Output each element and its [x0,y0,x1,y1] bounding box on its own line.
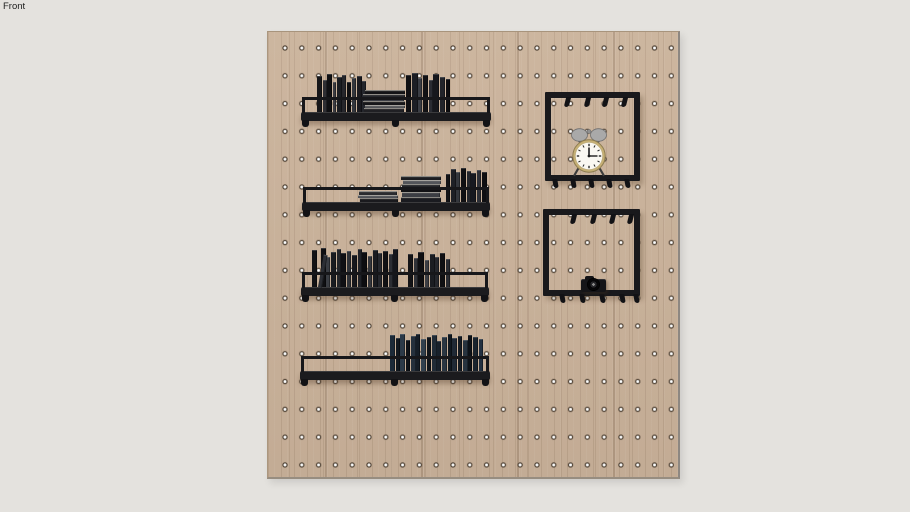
shelf-mount-hook [301,379,308,386]
book [342,75,346,112]
shelf-mount-hook [481,295,488,302]
camera-lens-icon [588,279,599,290]
frame-hook [627,214,634,224]
book [477,170,481,202]
book [461,168,466,202]
book [327,74,332,112]
clock-bell-right [591,129,607,142]
book-group[interactable] [408,241,451,287]
view-label: Front [3,1,25,12]
book [423,75,428,112]
shelf-rail [302,97,489,100]
shelf-rail [303,187,488,190]
frame-hook [570,214,577,224]
book [337,249,341,287]
book [323,80,327,112]
book [347,251,351,287]
book [352,255,357,287]
book [352,78,356,112]
book-group[interactable] [317,66,367,112]
clock-bell-left [572,129,588,142]
book-group[interactable] [406,66,451,112]
book [418,252,424,287]
book [317,76,322,112]
book [396,338,400,371]
book [442,337,447,371]
shelf-rail [301,356,488,359]
book [440,253,445,287]
book-group[interactable] [446,156,488,202]
book [358,249,362,287]
book [448,334,452,371]
book [479,339,483,371]
frame-hook [609,214,616,224]
book [383,251,388,287]
frame-hook [584,97,591,107]
book-stack[interactable] [358,191,398,202]
shelf-mount-hook [302,295,309,302]
book [429,80,433,112]
stacked-book [364,108,404,112]
shelf-rail-post-right [486,356,489,372]
book [390,335,395,371]
book [440,77,445,112]
frame-hook [564,97,571,107]
book [357,76,362,112]
alarm-clock-graphic [566,127,612,177]
shelf-rail-post-left [302,272,305,288]
book [418,78,422,112]
shelf-rail-post-right [485,272,488,288]
shelf-rail-post-right [487,97,490,113]
book [411,336,416,371]
clock-center-pin [588,155,591,158]
book [378,253,382,287]
shelf-mount-hook [391,379,398,386]
shelf-rail-post-left [302,97,305,113]
shelf-mount-hook [391,295,398,302]
book [458,336,462,371]
book-group[interactable] [312,241,399,287]
book [432,335,437,371]
stacked-book [360,198,398,202]
book [341,253,346,287]
shelf-rail [302,272,487,275]
book [468,335,472,371]
book [433,74,439,112]
book [393,249,398,287]
frame-hook [590,214,597,224]
book [312,250,317,287]
book [427,337,431,371]
book [337,77,342,112]
shelf-rail-post-left [303,187,306,203]
book [451,169,456,202]
shelf-mount-hook [482,210,489,217]
book [408,254,413,287]
book [331,252,336,287]
shelf-rail-post-right [486,187,489,203]
book [452,338,457,371]
shelf-mount-hook [392,120,399,127]
book [473,337,478,371]
stacked-book [401,197,441,202]
shelf-rail-post-left [301,356,304,372]
shelf-mount-hook [483,120,490,127]
book [400,334,405,371]
book [416,334,420,371]
book [430,254,435,287]
shelf-mount-hook [392,210,399,217]
shelf-mount-hook [482,379,489,386]
alarm-clock[interactable] [566,127,612,177]
frame-hook [621,97,628,107]
camera[interactable] [581,276,606,292]
viewport[interactable]: Front [0,0,910,512]
frame-hook [602,97,609,107]
book [389,254,393,287]
book [373,250,378,287]
shelf-mount-hook [302,120,309,127]
clock-knob [587,130,591,134]
book [406,75,411,112]
book-stack[interactable] [363,90,405,112]
book [421,339,426,371]
book [446,79,450,112]
book [362,252,367,287]
book-group[interactable] [390,325,483,371]
book [412,73,418,112]
shelf-mount-hook [303,210,310,217]
